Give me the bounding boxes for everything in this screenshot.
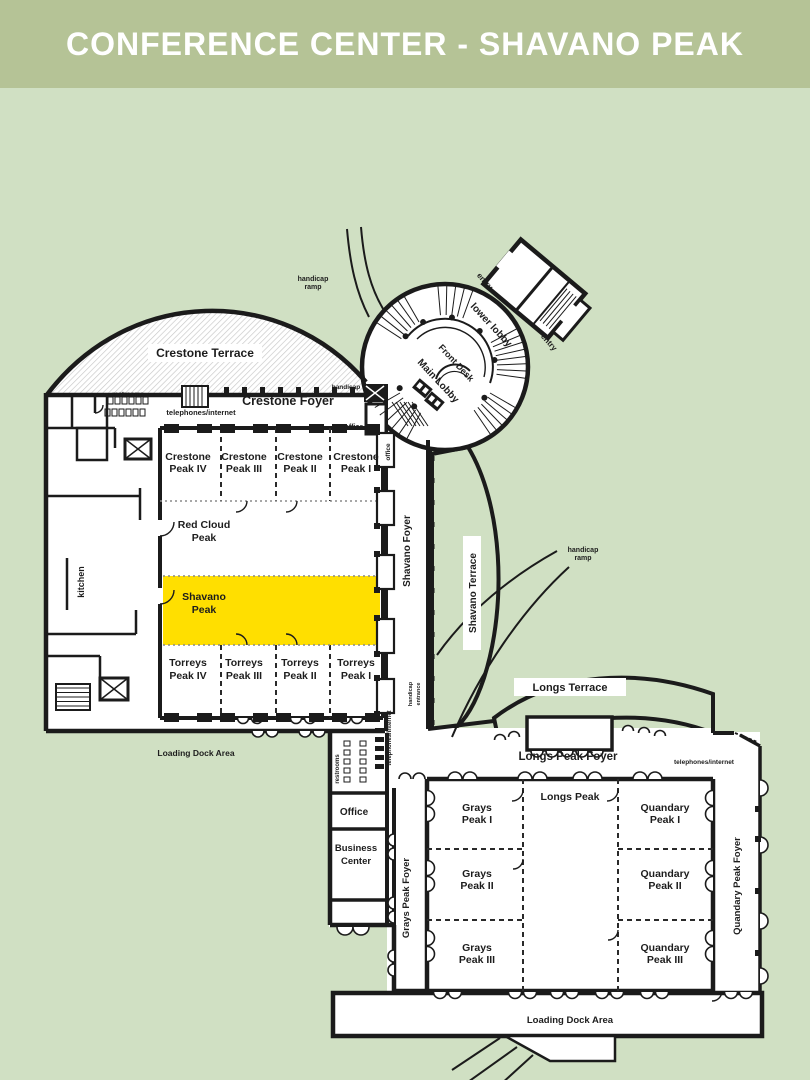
north-building-body — [46, 394, 386, 731]
label-crestone-1: Crestone — [333, 451, 379, 463]
label-red-cloud-line2: Peak — [192, 532, 217, 544]
label-kitchen: kitchen — [76, 566, 86, 598]
label-crestone-3: Crestone — [221, 451, 267, 463]
label-office-small: office — [345, 424, 364, 431]
page-title: CONFERENCE CENTER - SHAVANO PEAK — [66, 26, 744, 63]
label-crestone-1-line2: Peak I — [341, 463, 371, 475]
label-longs-terrace: Longs Terrace — [533, 682, 608, 694]
label-crestone-2-line2: Peak II — [283, 463, 316, 475]
label-restrooms-north: restrooms — [112, 391, 144, 398]
label-grays-3-line2: Peak III — [459, 954, 495, 966]
label-handicap-ramp-top-line2: ramp — [304, 284, 321, 291]
label-red-cloud: Red Cloud — [178, 519, 231, 531]
label-quandary-peak-foyer: Quandary Peak Foyer — [732, 837, 743, 935]
label-shavano-peak-line2: Peak — [192, 604, 217, 616]
label-torreys-3: Torreys — [225, 657, 263, 669]
header-bar: CONFERENCE CENTER - SHAVANO PEAK — [0, 0, 810, 88]
label-quandary-3: Quandary — [640, 942, 689, 954]
label-torreys-4: Torreys — [169, 657, 207, 669]
label-shavano-foyer: Shavano Foyer — [402, 515, 413, 587]
label-torreys-2-line2: Peak II — [283, 670, 316, 682]
label-handicap-entrance-north-line2: entrance — [332, 392, 359, 399]
label-crestone-4: Crestone — [165, 451, 211, 463]
label-crestone-terrace: Crestone Terrace — [156, 346, 254, 360]
label-crestone-2: Crestone — [277, 451, 323, 463]
label-quandary-2: Quandary — [640, 868, 689, 880]
label-torreys-1-line2: Peak I — [341, 670, 371, 682]
label-loading-dock-north: Loading Dock Area — [157, 748, 234, 758]
label-handicap-entrance-wing-line2: entrance — [416, 683, 422, 706]
label-handicap-entrance-wing: handicap — [408, 681, 414, 706]
label-quandary-1-line2: Peak I — [650, 814, 680, 826]
floor-plan: Crestone Terrace restrooms telephones/in… — [0, 88, 810, 1080]
label-office-side: office — [385, 443, 392, 461]
label-torreys-4-line2: Peak IV — [169, 670, 206, 682]
label-shavano-peak: Shavano — [182, 591, 226, 603]
label-handicap-ramp-right-line2: ramp — [574, 555, 591, 562]
label-grays-2-line2: Peak II — [460, 880, 493, 892]
label-quandary-2-line2: Peak II — [648, 880, 681, 892]
label-telephones-connector: telephones/internet — [387, 710, 393, 765]
label-quandary-3-line2: Peak III — [647, 954, 683, 966]
label-loading-dock-south: Loading Dock Area — [527, 1015, 614, 1026]
label-telephones-south: telephones/internet — [674, 759, 735, 766]
label-business-center-line2: Center — [341, 856, 371, 867]
label-crestone-foyer: Crestone Foyer — [242, 394, 334, 408]
label-longs-peak: Longs Peak — [541, 791, 600, 803]
label-grays-3: Grays — [462, 942, 492, 954]
label-grays-1: Grays — [462, 802, 492, 814]
label-shavano-terrace: Shavano Terrace — [468, 553, 479, 633]
label-handicap-entrance-north: handicap — [332, 384, 361, 391]
label-torreys-1: Torreys — [337, 657, 375, 669]
label-restrooms-connector: restrooms — [335, 754, 341, 784]
label-telephones-north: telephones/internet — [166, 408, 236, 417]
label-crestone-3-line2: Peak III — [226, 463, 262, 475]
label-quandary-1: Quandary — [640, 802, 689, 814]
label-grays-peak-foyer: Grays Peak Foyer — [401, 858, 412, 939]
label-grays-1-line2: Peak I — [462, 814, 492, 826]
label-crestone-4-line2: Peak IV — [169, 463, 206, 475]
label-handicap-ramp-right: handicap — [568, 547, 599, 554]
label-business-center: Business — [335, 843, 377, 854]
label-office-connector: Office — [340, 807, 369, 818]
label-handicap-ramp-top: handicap — [298, 276, 329, 283]
label-longs-peak-foyer: Longs Peak Foyer — [518, 751, 618, 763]
label-torreys-3-line2: Peak III — [226, 670, 262, 682]
label-grays-2: Grays — [462, 868, 492, 880]
dock-driveway — [505, 1036, 615, 1061]
label-torreys-2: Torreys — [281, 657, 319, 669]
